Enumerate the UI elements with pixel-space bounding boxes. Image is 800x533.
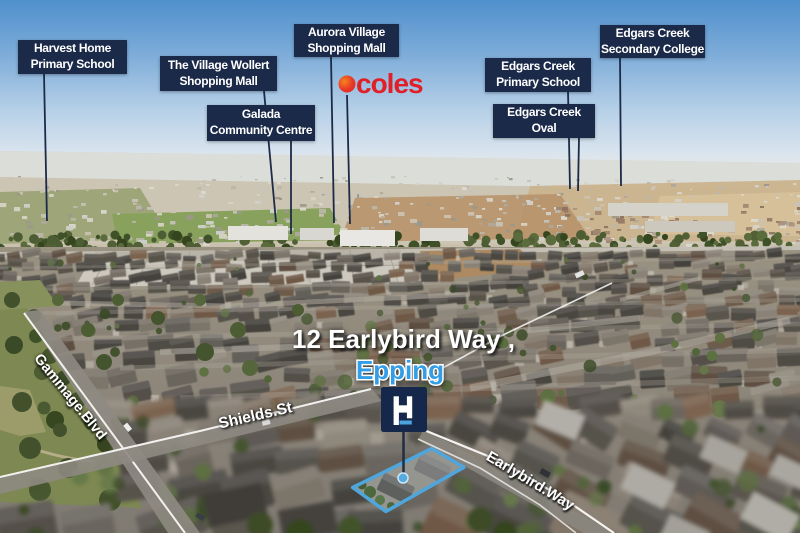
svg-text:coles: coles bbox=[356, 68, 423, 99]
svg-text:Epping: Epping bbox=[356, 355, 444, 385]
